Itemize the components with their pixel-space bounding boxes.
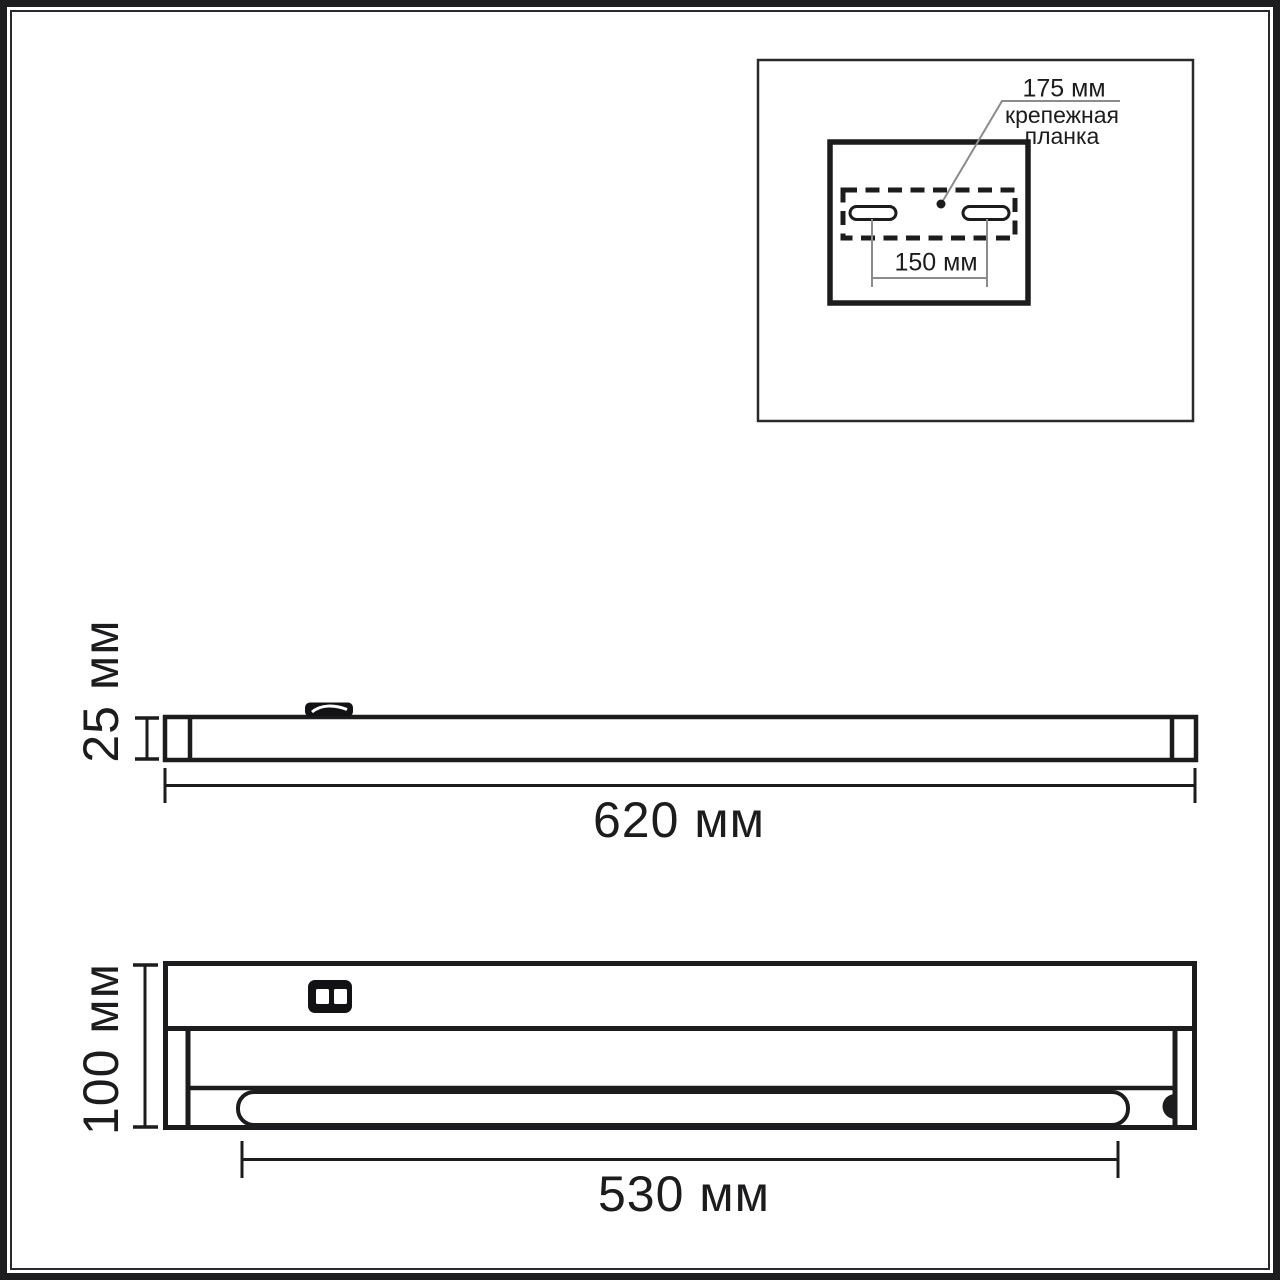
drawing-linework bbox=[0, 0, 1280, 1280]
front-view bbox=[133, 964, 1195, 1179]
power-switch-front bbox=[308, 980, 352, 1013]
side-height-dimension bbox=[135, 718, 159, 759]
hole-spacing-label: 150 мм bbox=[894, 251, 977, 276]
side-view bbox=[135, 703, 1196, 804]
front-height-dimension bbox=[133, 965, 158, 1127]
plate-width-label: 175 мм bbox=[1022, 77, 1105, 102]
plate-name-label: крепежная планка bbox=[1005, 105, 1119, 147]
mounting-slot-left bbox=[850, 207, 896, 220]
plate-name-line2: планка bbox=[1005, 126, 1119, 147]
mounting-slot-right bbox=[963, 207, 1009, 220]
lamp-tube bbox=[238, 1092, 1128, 1125]
mounting-plate-inset bbox=[758, 60, 1193, 421]
technical-drawing-page: 175 мм крепежная планка 150 мм 25 мм 620… bbox=[0, 0, 1280, 1280]
side-height-label: 25 мм bbox=[76, 619, 126, 762]
side-length-label: 620 мм bbox=[593, 795, 765, 845]
plate-leader-dot bbox=[937, 200, 946, 209]
power-switch-side bbox=[305, 703, 353, 717]
side-view-body bbox=[165, 717, 1196, 760]
front-height-label: 100 мм bbox=[76, 963, 126, 1135]
lamp-length-label: 530 мм bbox=[598, 1169, 770, 1219]
